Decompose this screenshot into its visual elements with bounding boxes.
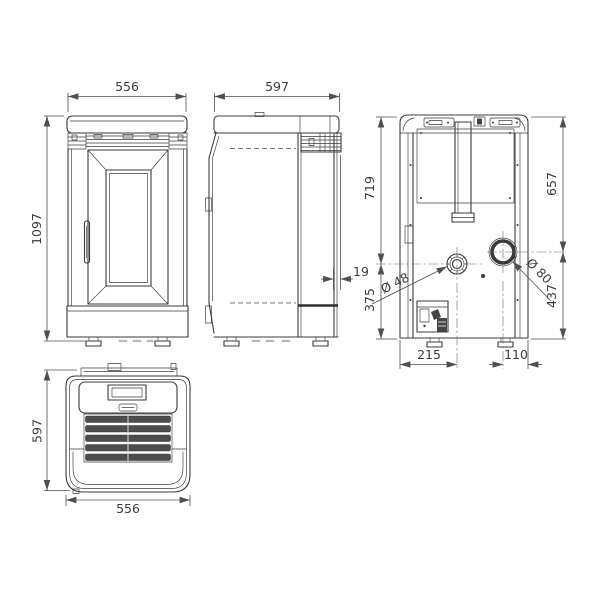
dim-back-upper-right-label: 657 — [544, 172, 559, 196]
dim-front-width-label: 556 — [115, 79, 139, 94]
back-screw — [481, 274, 485, 278]
top-view: 597 556 — [30, 364, 191, 517]
dim-back-bottom-right: 110 — [489, 340, 542, 369]
front-base-plinth — [67, 306, 188, 337]
dim-rear-grille-offset: 19 — [321, 155, 369, 290]
back-view: 719 375 657 437 215 110 Ø 48 — [362, 115, 566, 369]
top-air-slats — [84, 414, 172, 462]
hopper-back-panel — [417, 129, 514, 203]
dim-back-bottom-left: 215 — [400, 340, 457, 369]
flue-outlet-port — [487, 231, 519, 273]
back-outline — [400, 115, 528, 338]
door-handle — [85, 221, 90, 263]
dim-front-height-label: 1097 — [29, 213, 44, 245]
air-intake-port — [447, 247, 467, 281]
flue-channel — [452, 122, 474, 222]
top-hinges — [424, 117, 520, 127]
dim-back-lower-right: 437 — [544, 252, 563, 339]
front-door — [88, 150, 168, 304]
stove-dimension-drawing: 556 1097 — [0, 0, 600, 600]
door-glass — [110, 174, 148, 283]
dim-back-lower-left-label: 375 — [362, 288, 377, 312]
dim-top-depth-label: 597 — [30, 419, 45, 443]
front-feet — [86, 337, 170, 346]
top-back-edge — [81, 364, 177, 377]
side-view: 597 19 — [206, 79, 369, 346]
hopper-lid — [79, 382, 177, 413]
technical-drawing-page: 556 1097 — [0, 0, 600, 600]
power-inlet-socket — [420, 309, 429, 322]
side-rear-grille — [301, 133, 341, 152]
dim-front-height: 1097 — [29, 116, 88, 341]
dim-air-intake-diameter: Ø 48 — [372, 267, 447, 305]
control-display — [108, 385, 146, 400]
dim-top-width-label: 556 — [116, 501, 140, 516]
dim-front-width: 556 — [68, 79, 186, 112]
dim-back-upper-left-label: 719 — [362, 176, 377, 200]
dim-back-bottom-right-label: 110 — [504, 347, 528, 362]
dim-side-depth: 597 — [215, 79, 340, 112]
front-view: 556 1097 — [29, 79, 188, 346]
side-feet — [224, 337, 328, 346]
side-top-cap — [214, 116, 339, 133]
dim-back-bottom-left-label: 215 — [417, 347, 441, 362]
front-top-cap — [67, 116, 187, 133]
power-connection-box — [417, 301, 448, 332]
dim-top-depth: 597 — [30, 370, 78, 491]
control-button — [119, 404, 137, 411]
dim-side-depth-label: 597 — [265, 79, 289, 94]
back-feet — [427, 338, 513, 347]
dim-top-width: 556 — [66, 495, 190, 516]
front-convection-grille — [68, 133, 187, 149]
dim-rear-grille-offset-label: 19 — [353, 264, 369, 279]
